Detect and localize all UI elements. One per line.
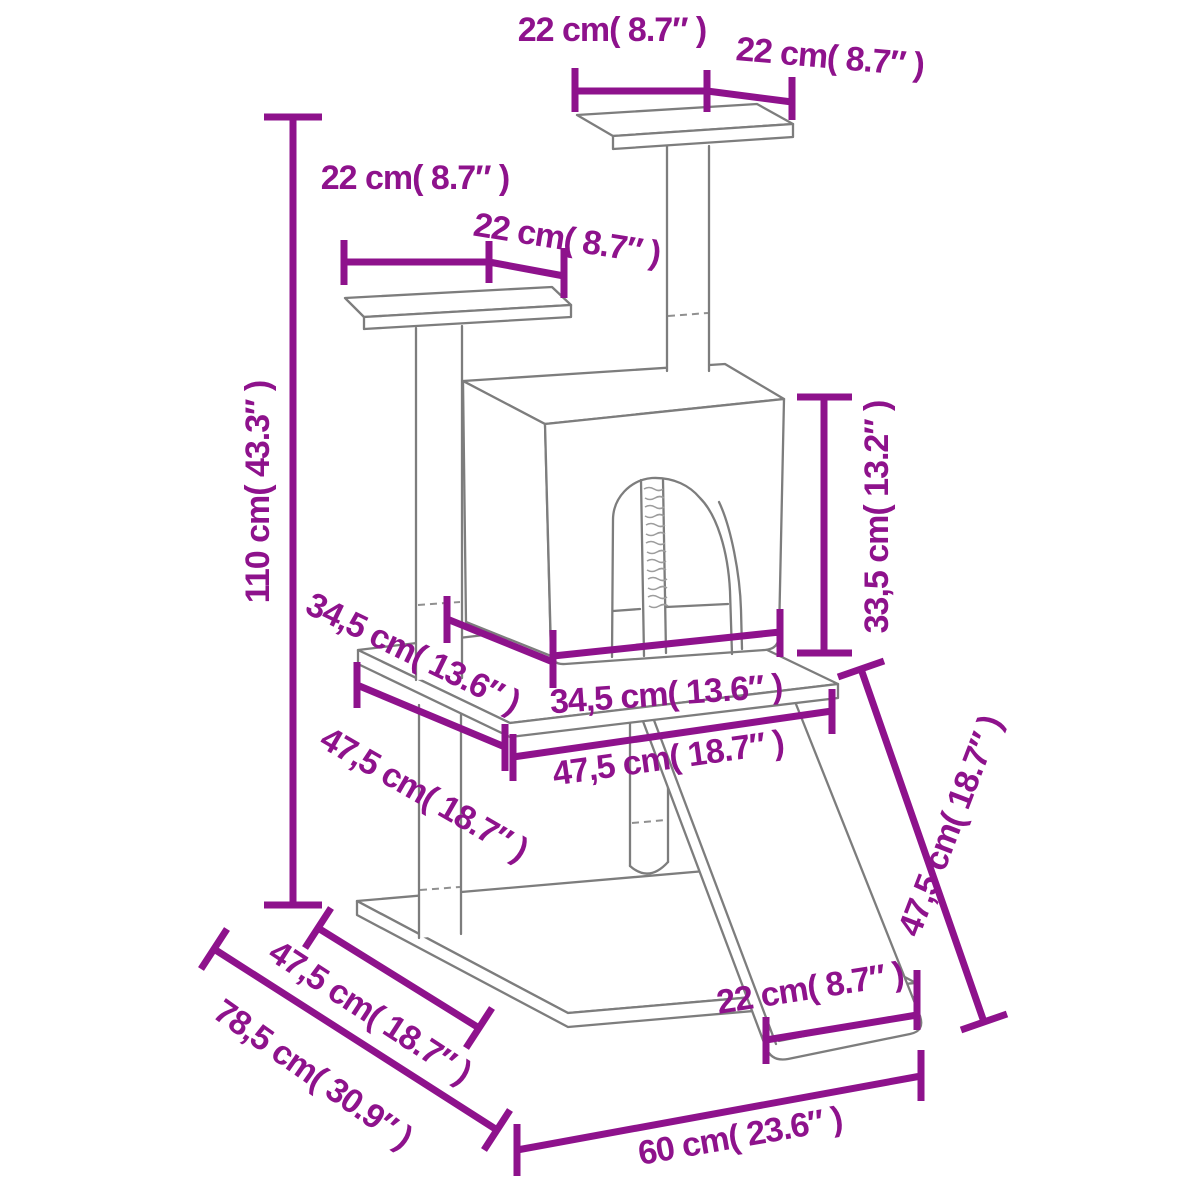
top-post bbox=[667, 146, 709, 371]
condo-left-wall bbox=[463, 381, 551, 656]
label-top-platform-length: 22 cm( 8.7″ ) bbox=[518, 11, 707, 49]
side-platform bbox=[345, 287, 571, 329]
label-total-height: 110 cm( 43.3″ ) bbox=[239, 381, 277, 603]
condo bbox=[463, 364, 784, 664]
upper-left-post bbox=[416, 326, 462, 680]
cat-tree-diagram-svg: 22 cm( 8.7″ ) 22 cm( 8.7″ ) 22 cm( 8.7″ … bbox=[0, 0, 1200, 1200]
dim-condo-height-line bbox=[797, 397, 852, 653]
dim-top-platform-length-line bbox=[575, 68, 707, 112]
dimension-diagram: 22 cm( 8.7″ ) 22 cm( 8.7″ ) 22 cm( 8.7″ … bbox=[0, 0, 1200, 1200]
label-condo-height: 33,5 cm( 13.2″ ) bbox=[858, 401, 896, 634]
label-ramp-length: 47,5 cm( 18.7″ ) bbox=[891, 711, 1010, 942]
door-scratch-post bbox=[641, 480, 668, 656]
top-platform bbox=[577, 104, 793, 149]
label-top-platform-depth: 22 cm( 8.7″ ) bbox=[734, 30, 925, 84]
label-side-platform-length: 22 cm( 8.7″ ) bbox=[321, 159, 510, 197]
